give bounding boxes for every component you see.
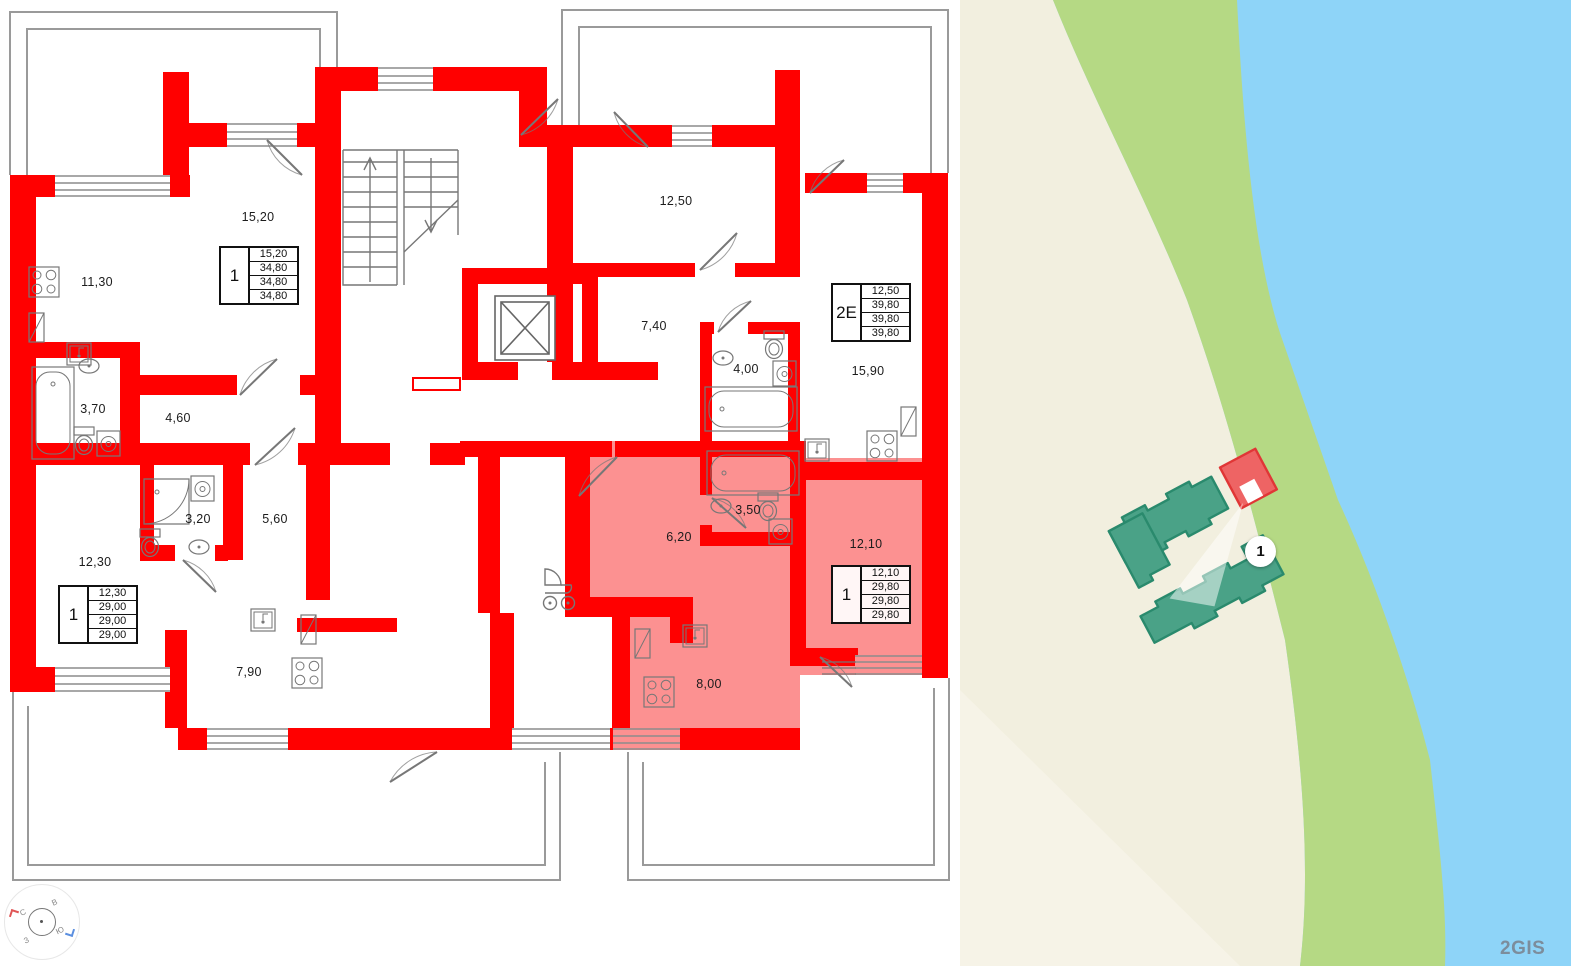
apartment-area-value: 12,30 bbox=[89, 587, 136, 601]
apartment-info-table[interactable]: 2Е 12,50 39,80 39,80 39,80 bbox=[831, 283, 911, 342]
apartment-area-value: 29,00 bbox=[89, 601, 136, 615]
apartment-type: 2Е bbox=[833, 285, 862, 340]
apartment-area-value: 12,10 bbox=[862, 567, 909, 581]
apartment-area-value: 39,80 bbox=[862, 299, 909, 313]
apartment-area-value: 12,50 bbox=[862, 285, 909, 299]
apartment-area-value: 29,00 bbox=[89, 629, 136, 642]
room-area-label: 7,40 bbox=[641, 319, 667, 333]
apartment-area-value: 34,80 bbox=[250, 276, 297, 290]
room-area-label: 7,90 bbox=[236, 665, 262, 679]
room-area-label: 5,60 bbox=[262, 512, 288, 526]
floorplan-canvas bbox=[0, 0, 960, 966]
apartment-info-table[interactable]: 1 12,30 29,00 29,00 29,00 bbox=[58, 585, 138, 644]
room-area-label: 8,00 bbox=[696, 677, 722, 691]
room-area-label: 12,30 bbox=[79, 555, 112, 569]
elevator-shaft bbox=[495, 296, 555, 360]
apartment-area-value: 34,80 bbox=[250, 290, 297, 303]
room-area-label: 15,20 bbox=[242, 210, 275, 224]
apartment-area-value: 39,80 bbox=[862, 313, 909, 327]
screenshot-stage: 11,30 15,20 12,50 7,40 4,00 15,90 3,70 4… bbox=[0, 0, 1571, 966]
apartment-type: 1 bbox=[221, 248, 250, 303]
map-canvas[interactable] bbox=[960, 0, 1571, 966]
room-area-label: 4,00 bbox=[733, 362, 759, 376]
map-entrance-badge[interactable]: 1 bbox=[1245, 536, 1276, 567]
map-attribution-logo[interactable]: 2GIS bbox=[1500, 938, 1545, 960]
apartment-area-value: 29,80 bbox=[862, 581, 909, 595]
apartment-area-value: 39,80 bbox=[862, 327, 909, 340]
room-area-label: 3,50 bbox=[735, 503, 761, 517]
room-area-label: 3,70 bbox=[80, 402, 106, 416]
compass-rose: С В Ю З bbox=[4, 884, 80, 960]
apartment-info-table-selected[interactable]: 1 12,10 29,80 29,80 29,80 bbox=[831, 565, 911, 624]
room-area-label: 12,50 bbox=[660, 194, 693, 208]
apartment-area-value: 29,00 bbox=[89, 615, 136, 629]
room-area-label: 12,10 bbox=[850, 537, 883, 551]
room-area-label: 4,60 bbox=[165, 411, 191, 425]
apartment-info-table[interactable]: 1 15,20 34,80 34,80 34,80 bbox=[219, 246, 299, 305]
room-area-label: 3,20 bbox=[185, 512, 211, 526]
compass-center-dot bbox=[40, 920, 43, 923]
apartment-area-value: 29,80 bbox=[862, 595, 909, 609]
room-area-label: 11,30 bbox=[81, 275, 113, 289]
apartment-type: 1 bbox=[60, 587, 89, 642]
apartment-area-value: 29,80 bbox=[862, 609, 909, 622]
apartment-type: 1 bbox=[833, 567, 862, 622]
room-area-label: 15,90 bbox=[852, 364, 885, 378]
apartment-area-value: 34,80 bbox=[250, 262, 297, 276]
room-area-label: 6,20 bbox=[666, 530, 692, 544]
apartment-area-value: 15,20 bbox=[250, 248, 297, 262]
